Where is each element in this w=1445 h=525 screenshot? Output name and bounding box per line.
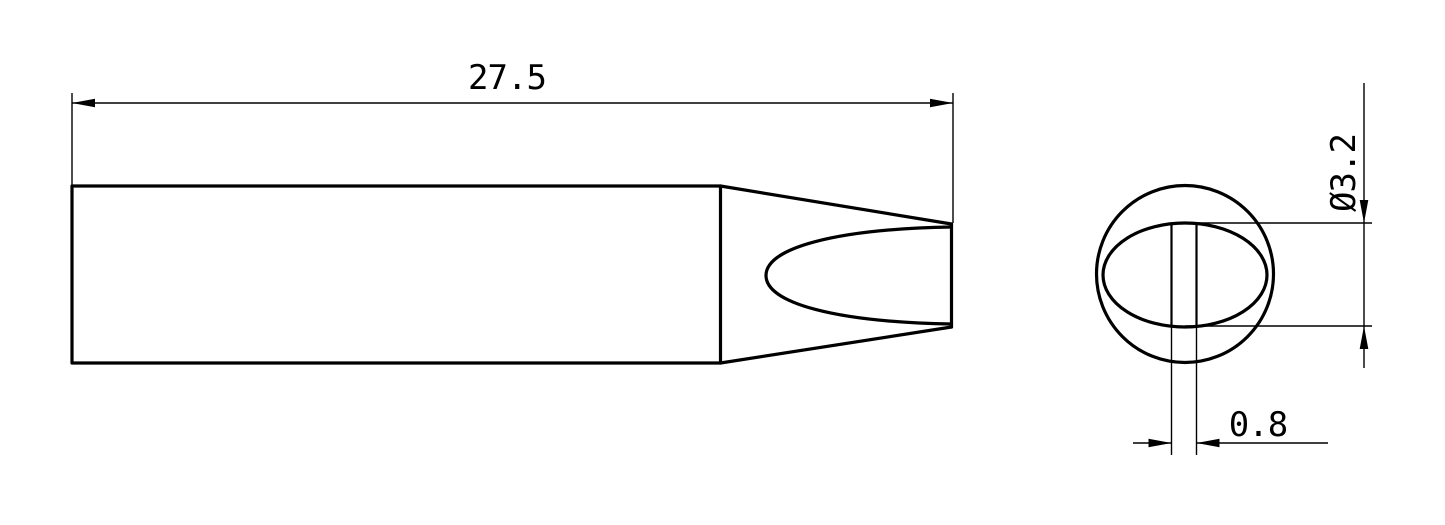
chisel-face-oval (1103, 223, 1267, 327)
dimension-arrow-up (1360, 326, 1369, 349)
dimension-arrow-right (930, 99, 953, 108)
dimension-arrow-inward-right (1149, 439, 1172, 448)
tip-shank-circle (1097, 186, 1274, 363)
technical-drawing-canvas: 27.5 Ø3.2 0.8 (0, 0, 1445, 525)
dimension-label-edge-width: 0.8 (1229, 405, 1287, 445)
dimension-arrow-inward-left (1197, 439, 1220, 448)
dimension-edge-width: 0.8 (1133, 327, 1328, 455)
dimension-arrow-left (72, 99, 95, 108)
tip-side-view (72, 186, 952, 363)
dimension-label-diameter: Ø3.2 (1324, 134, 1364, 212)
dimension-label-length: 27.5 (468, 58, 546, 98)
tip-body-outline (72, 186, 721, 363)
chisel-flat-outline (766, 227, 952, 324)
tip-end-view (1097, 186, 1274, 363)
tip-taper-top-line (721, 186, 952, 224)
soldering-tip-drawing: 27.5 Ø3.2 0.8 (0, 0, 1445, 525)
dimension-length: 27.5 (72, 58, 953, 223)
tip-taper-bottom-line (721, 327, 952, 363)
